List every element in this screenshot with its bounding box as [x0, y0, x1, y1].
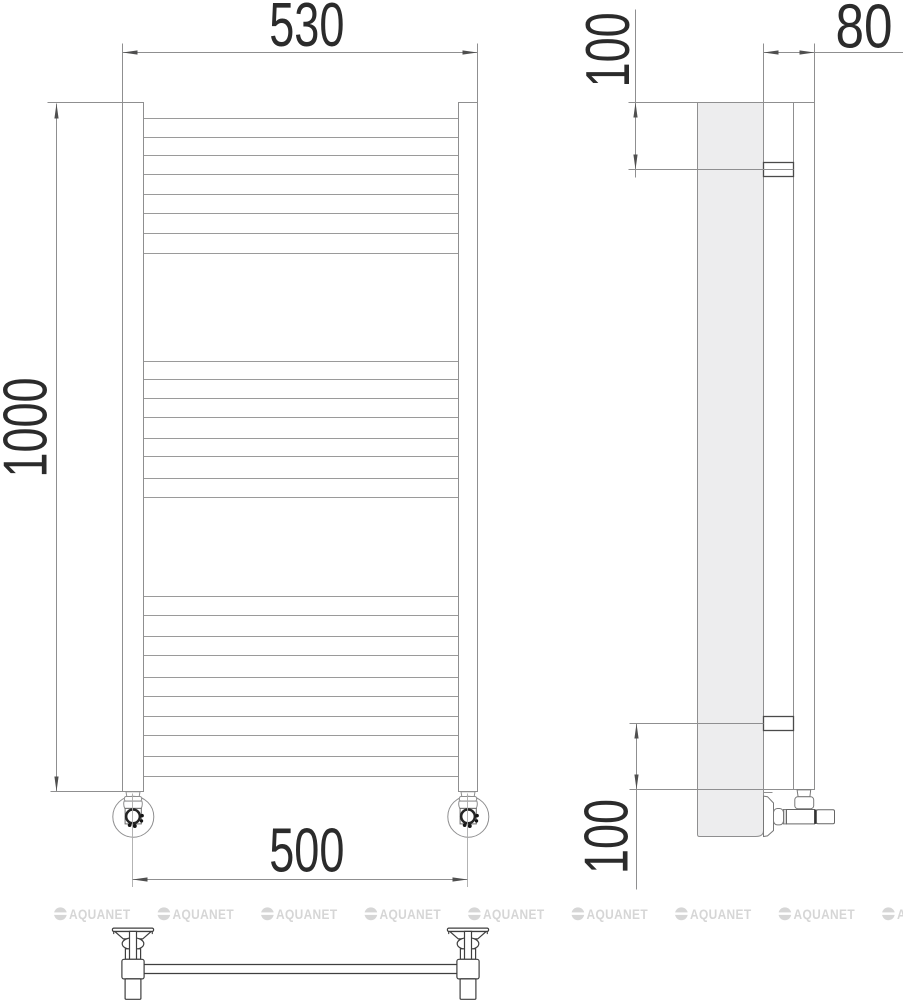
- svg-text:80: 80: [836, 0, 893, 62]
- svg-text:AQUANET: AQUANET: [276, 907, 338, 922]
- svg-text:AQUANET: AQUANET: [897, 907, 903, 922]
- svg-text:AQUANET: AQUANET: [173, 907, 235, 922]
- svg-text:100: 100: [574, 12, 643, 87]
- svg-text:AQUANET: AQUANET: [380, 907, 442, 922]
- svg-text:AQUANET: AQUANET: [483, 907, 545, 922]
- svg-text:530: 530: [269, 0, 344, 60]
- svg-text:AQUANET: AQUANET: [587, 907, 649, 922]
- svg-text:AQUANET: AQUANET: [69, 907, 131, 922]
- svg-text:500: 500: [269, 817, 344, 886]
- svg-text:AQUANET: AQUANET: [690, 907, 752, 922]
- svg-text:100: 100: [573, 799, 642, 874]
- svg-text:1000: 1000: [0, 378, 60, 478]
- svg-text:AQUANET: AQUANET: [794, 907, 856, 922]
